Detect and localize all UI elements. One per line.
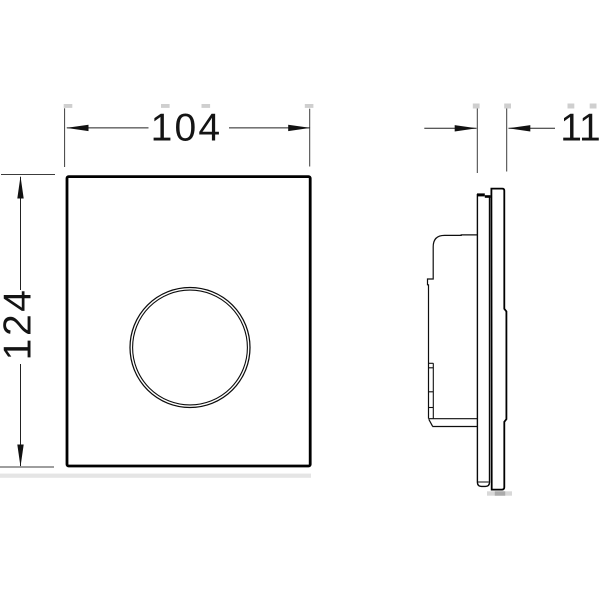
svg-text:124: 124 — [0, 287, 40, 360]
svg-text:11: 11 — [560, 107, 600, 150]
svg-text:104: 104 — [151, 107, 223, 150]
